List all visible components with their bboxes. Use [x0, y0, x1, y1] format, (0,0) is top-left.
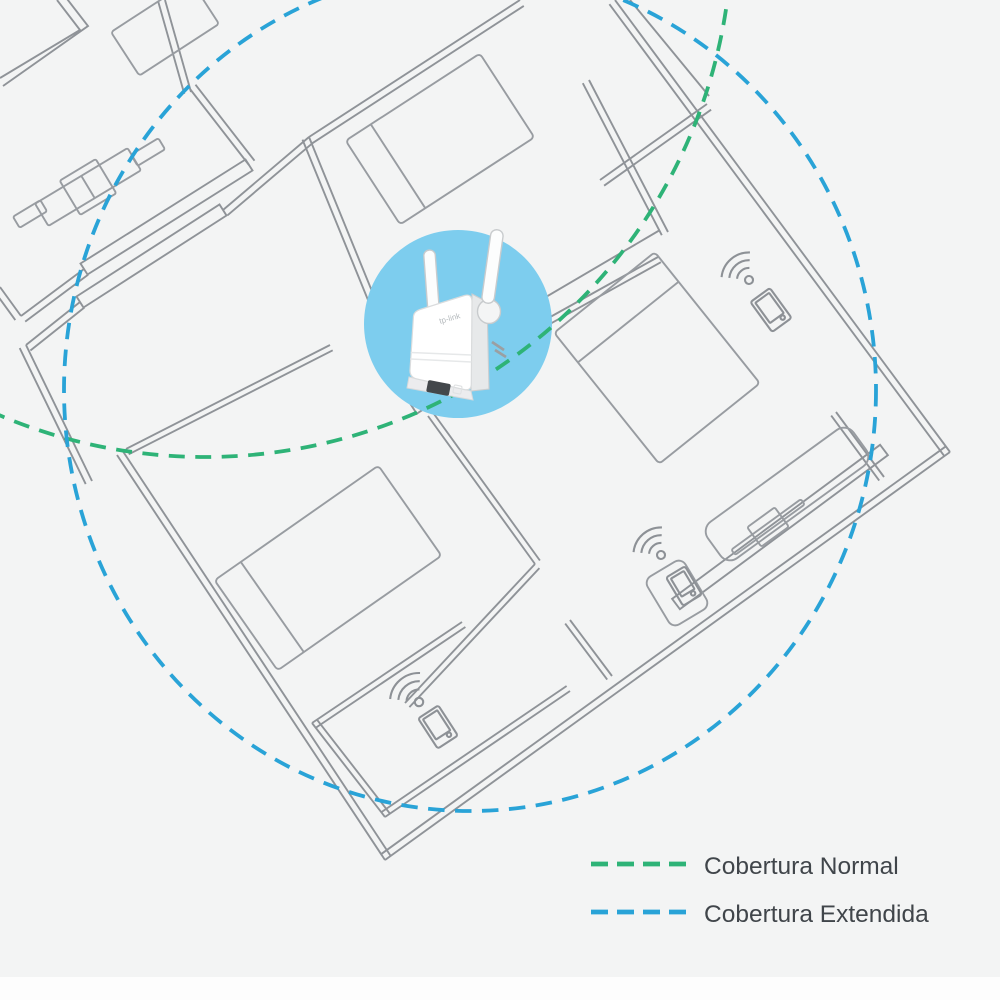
- svg-text:Cobertura Extendida: Cobertura Extendida: [704, 901, 929, 928]
- svg-text:Cobertura Normal: Cobertura Normal: [704, 853, 899, 880]
